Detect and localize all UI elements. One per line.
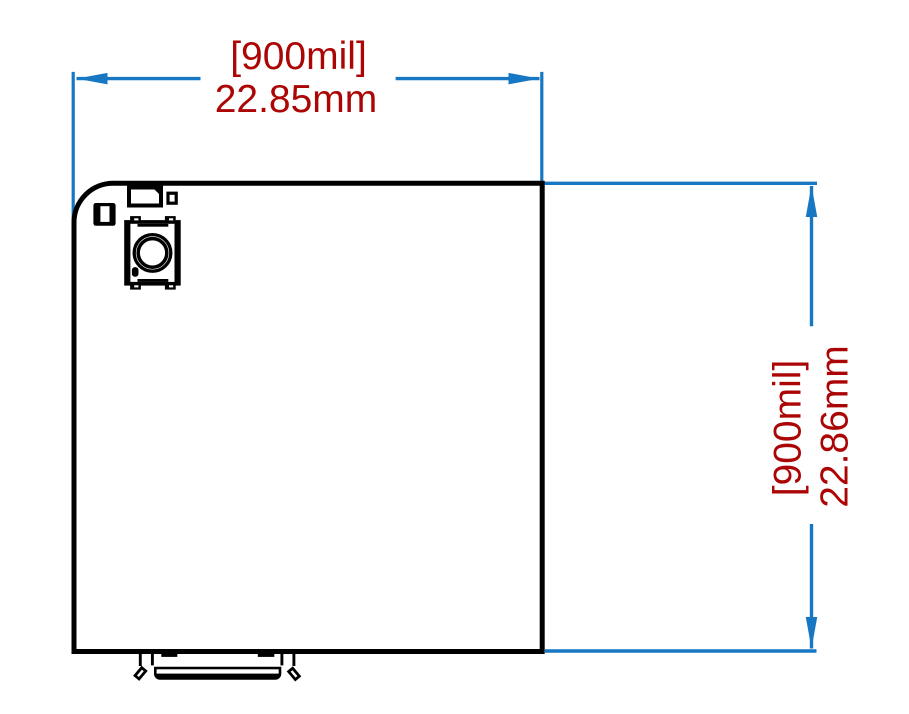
svg-text:22.85mm: 22.85mm xyxy=(215,78,378,121)
svg-text:22.86mm: 22.86mm xyxy=(813,345,856,508)
svg-text:[900mil]: [900mil] xyxy=(230,35,367,78)
svg-text:[900mil]: [900mil] xyxy=(767,360,810,497)
